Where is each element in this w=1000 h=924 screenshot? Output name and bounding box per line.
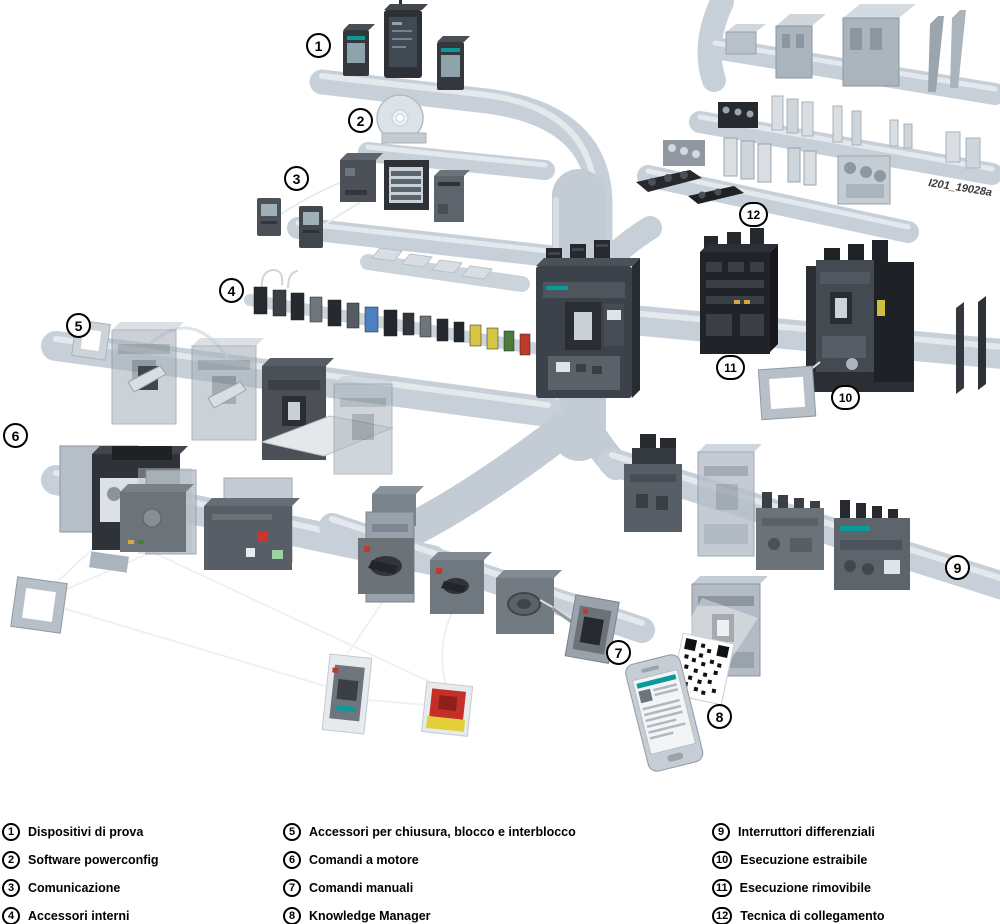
legend-item-10: 10 Esecuzione estraibile: [712, 846, 885, 874]
callout-11: 11: [716, 355, 745, 380]
callout-6: 6: [3, 423, 28, 448]
legend-item-8: 8 Knowledge Manager: [283, 902, 576, 924]
legend-column-3: 9 Interruttori differenziali 10 Esecuzio…: [712, 818, 885, 924]
legend-num-12: 12: [712, 907, 732, 924]
legend-label-10: Esecuzione estraibile: [740, 853, 867, 867]
front-panel-handle-gray: [322, 654, 372, 734]
legend-item-7: 7 Comandi manuali: [283, 874, 576, 902]
legend-item-5: 5 Accessori per chiusura, blocco e inter…: [283, 818, 576, 846]
plug-in-base: [700, 228, 778, 354]
callout-9: 9: [945, 555, 970, 580]
legend-item-11: 11 Esecuzione rimovibile: [712, 874, 885, 902]
legend-num-4: 4: [2, 907, 20, 924]
central-breaker: [536, 240, 640, 398]
legend-num-8: 8: [283, 907, 301, 924]
callout-10: 10: [831, 385, 860, 410]
legend-label-2: Software powerconfig: [28, 853, 159, 867]
callout-3: 3: [284, 166, 309, 191]
residual-current-devices: [624, 434, 910, 590]
legend-item-9: 9 Interruttori differenziali: [712, 818, 885, 846]
legend-num-1: 1: [2, 823, 20, 841]
motor-operator-3: [204, 478, 300, 570]
legend-column-2: 5 Accessori per chiusura, blocco e inter…: [283, 818, 576, 924]
callout-4: 4: [219, 278, 244, 303]
legend-num-10: 10: [712, 851, 732, 869]
callout-1: 1: [306, 33, 331, 58]
legend-num-2: 2: [2, 851, 20, 869]
legend-num-7: 7: [283, 879, 301, 897]
legend-item-2: 2 Software powerconfig: [2, 846, 159, 874]
front-panel-handle-emergency: [422, 682, 473, 737]
legend-label-8: Knowledge Manager: [309, 909, 431, 923]
callout-2: 2: [348, 108, 373, 133]
callout-7: 7: [606, 640, 631, 665]
rotary-handle-2: [430, 552, 492, 614]
legend-label-3: Comunicazione: [28, 881, 120, 895]
rcd-module-3: [834, 500, 910, 590]
legend-item-12: 12 Tecnica di collegamento: [712, 902, 885, 924]
door-cutout-frame-left: [11, 577, 67, 633]
legend-label-7: Comandi manuali: [309, 881, 413, 895]
legend-label-4: Accessori interni: [28, 909, 129, 923]
legend-label-5: Accessori per chiusura, blocco e interbl…: [309, 825, 576, 839]
legend-label-9: Interruttori differenziali: [738, 825, 875, 839]
legend: 1 Dispositivi di prova 2 Software powerc…: [0, 818, 1000, 924]
legend-item-6: 6 Comandi a motore: [283, 846, 576, 874]
door-cutout-frame: [758, 366, 815, 420]
callout-8: 8: [707, 704, 732, 729]
legend-item-3: 3 Comunicazione: [2, 874, 159, 902]
legend-num-3: 3: [2, 879, 20, 897]
legend-label-11: Esecuzione rimovibile: [740, 881, 871, 895]
knowledge-manager: [624, 576, 768, 773]
legend-num-5: 5: [283, 823, 301, 841]
legend-item-4: 4 Accessori interni: [2, 902, 159, 924]
rotary-handle-1: [358, 538, 414, 594]
legend-label-1: Dispositivi di prova: [28, 825, 143, 839]
manual-operators: [322, 486, 619, 736]
rcd-module-2: [756, 492, 824, 570]
catalog-figure: I201_19028a: [0, 0, 1000, 924]
callout-5: 5: [66, 313, 91, 338]
legend-label-6: Comandi a motore: [309, 853, 419, 867]
ghost-breaker: [698, 444, 762, 556]
legend-num-11: 11: [712, 879, 732, 897]
door-coupling-rotary: [496, 570, 562, 634]
legend-item-1: 1 Dispositivi di prova: [2, 818, 159, 846]
legend-column-1: 1 Dispositivi di prova 2 Software powerc…: [2, 818, 159, 924]
callout-12: 12: [739, 202, 768, 227]
legend-label-12: Tecnica di collegamento: [740, 909, 884, 923]
legend-num-9: 9: [712, 823, 730, 841]
legend-num-6: 6: [283, 851, 301, 869]
